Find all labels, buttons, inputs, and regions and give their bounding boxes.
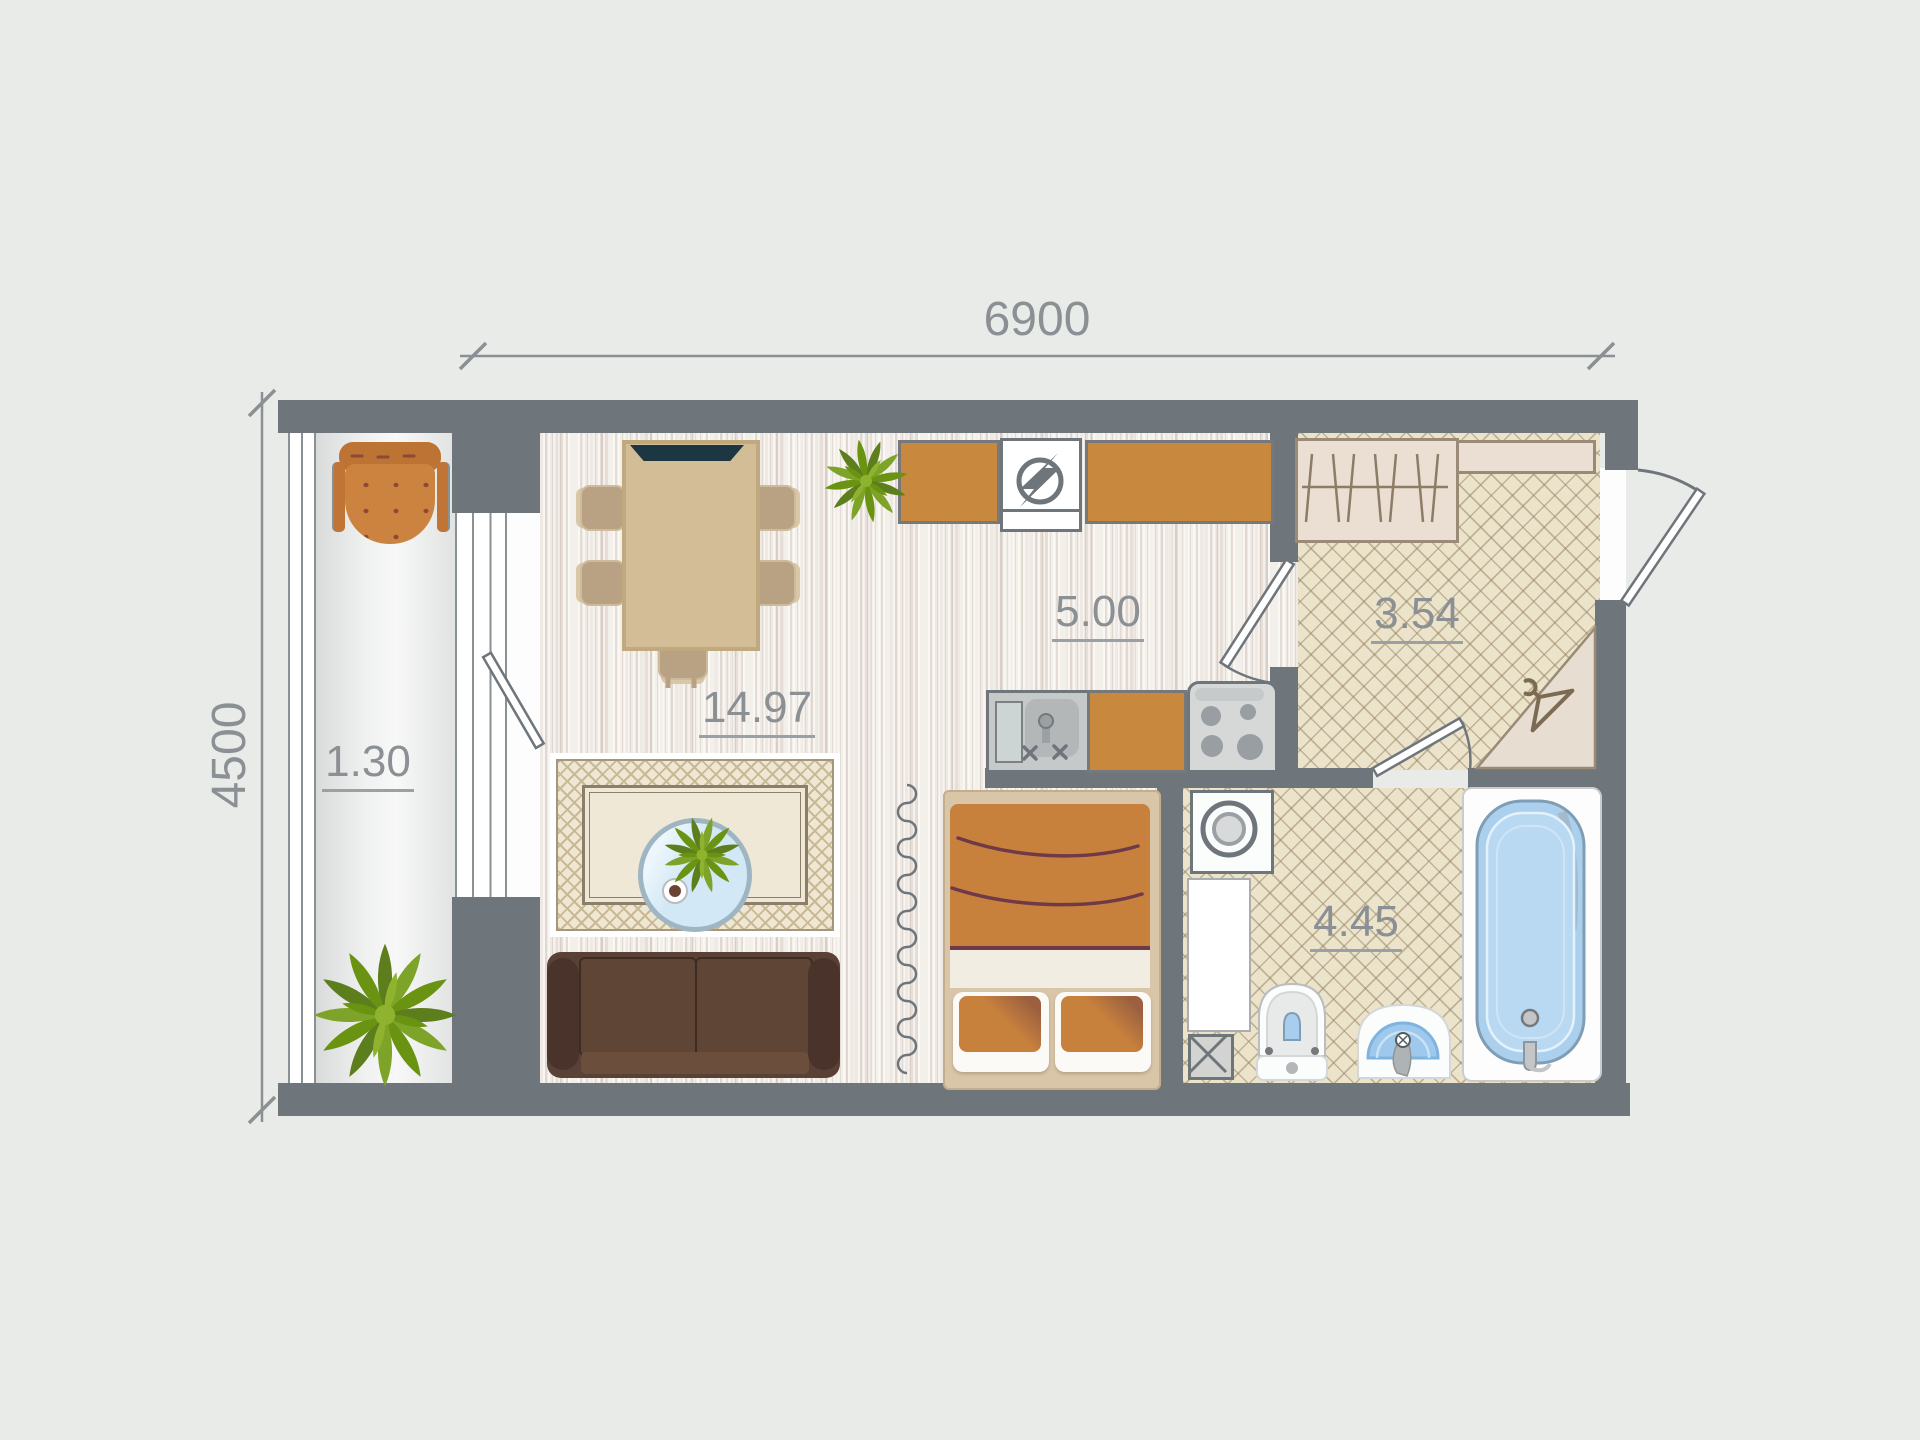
bathroom-counter [1187, 878, 1251, 1032]
duct-shaft [1188, 1034, 1234, 1080]
stove [1187, 681, 1278, 773]
dining-table [622, 440, 760, 651]
wall-bath-top-right [1468, 768, 1620, 788]
fridge [1000, 438, 1082, 532]
floor-plan-canvas: 14.97 5.00 3.54 4.45 1.30 6900 4500 [0, 0, 1920, 1440]
coffee-table [638, 818, 752, 932]
dining-chair [580, 485, 626, 531]
sink-basin [1025, 699, 1079, 757]
sofa-cushion [695, 957, 813, 1057]
wall-top [278, 400, 1638, 433]
room-label-bathroom: 4.45 [1276, 900, 1436, 952]
dimension-label-width: 6900 [935, 296, 1139, 344]
balcony-inner-window [455, 513, 507, 897]
sofa-seat-front [581, 1052, 809, 1074]
bed-sheet [950, 950, 1150, 988]
armchair-armrest-left [332, 462, 345, 532]
hall-shelf [1456, 440, 1596, 474]
balcony-armchair [334, 440, 446, 544]
kitchen-counter-lower [1087, 690, 1187, 773]
sofa-armrest-right [808, 958, 840, 1070]
bed-pillow [1055, 992, 1151, 1072]
wardrobe [1295, 438, 1459, 543]
sofa [547, 952, 840, 1078]
bathtub [1462, 787, 1602, 1082]
wall-entry-pier [1605, 400, 1638, 470]
room-label-kitchen: 5.00 [1018, 590, 1178, 642]
table-runner [630, 445, 744, 461]
wall-kitchen-hall-upper [1270, 433, 1298, 562]
kitchen-counter-upper-right [1085, 440, 1274, 524]
sofa-armrest-left [547, 958, 579, 1070]
bed-blanket [950, 804, 1150, 950]
room-label-hallway: 3.54 [1337, 592, 1497, 644]
room-label-balcony: 1.30 [288, 740, 448, 792]
coffee-cup [662, 878, 688, 904]
armchair-seat [345, 464, 435, 544]
dining-chair [580, 560, 626, 606]
wall-balcony-pier-top [452, 433, 540, 513]
entry-door-gap [1600, 468, 1626, 600]
sink-drainboard [995, 701, 1023, 763]
balcony-door-threshold [503, 513, 540, 897]
dimension-label-height: 4500 [206, 653, 254, 857]
kitchen-counter-upper-left [898, 440, 1000, 524]
armchair-armrest-right [437, 462, 450, 532]
washing-machine [1190, 790, 1274, 874]
entry-door [1621, 470, 1704, 606]
wall-balcony-pier-bottom [452, 897, 540, 1083]
sofa-cushion [579, 957, 697, 1057]
bed-pillow [953, 992, 1049, 1072]
kitchen-sink-unit [986, 690, 1090, 773]
room-label-living: 14.97 [677, 686, 837, 738]
bed [943, 790, 1161, 1090]
